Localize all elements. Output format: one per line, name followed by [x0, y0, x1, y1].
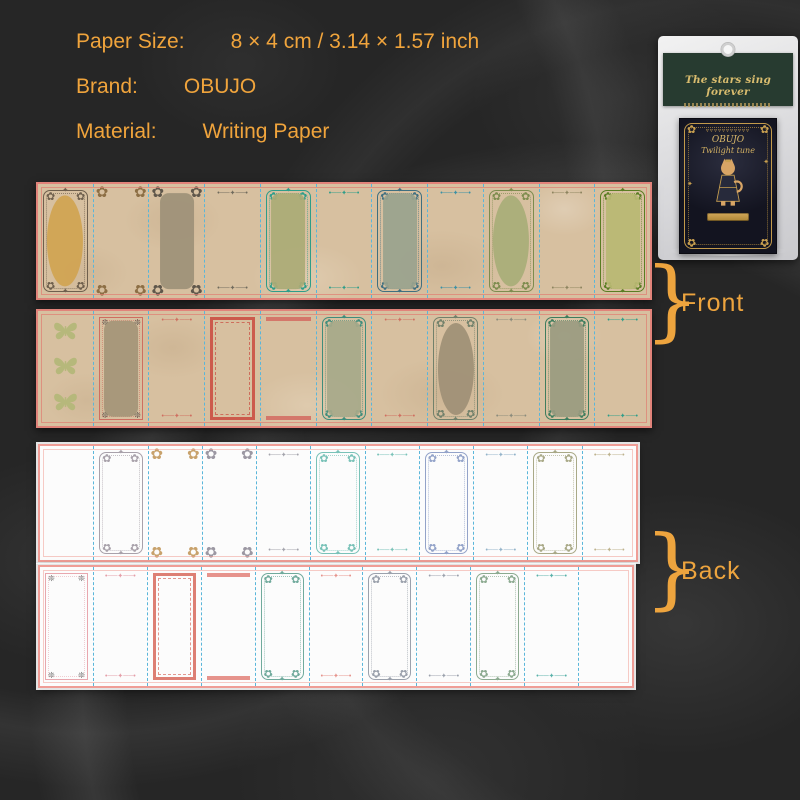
- paper-panel: •──✦──••──✦──•: [148, 311, 204, 426]
- flourish-icon: ✿: [264, 575, 273, 586]
- line-ornament-frame: •──✦──••──✦──•: [428, 184, 483, 298]
- star-icon: ✦: [495, 570, 501, 577]
- flourish-icon: ✿: [102, 454, 111, 465]
- back-label: Back: [681, 557, 741, 586]
- notepad-cover: ✿ ✿ ✿ ✿ ▿▿▿▿▿▿▿▿▿▿▿ OBUJO Twilight tune …: [679, 118, 777, 254]
- hang-hole: [722, 43, 735, 56]
- ornament-line: •──✦──•: [317, 285, 372, 292]
- flourish-icon: ✿: [96, 282, 109, 297]
- paper-panel: ✿✿✿✿✦✦: [470, 567, 524, 686]
- info-row-brand: Brand:OBUJO: [76, 75, 479, 99]
- ornament-line: •──✦──•: [366, 452, 419, 459]
- ornament-line: •──✦──•: [94, 573, 147, 580]
- flourish-icon: ✿: [241, 544, 254, 559]
- star-icon: ✦: [118, 449, 124, 456]
- star-icon: ✦: [508, 187, 514, 194]
- paper-panel: ✿✿✿✿✦✦: [527, 446, 581, 560]
- line-ornament-frame: •──✦──••──✦──•: [257, 446, 310, 560]
- notepad-series-text: Twilight tune: [701, 146, 755, 156]
- bars-frame: [207, 573, 250, 680]
- flourish-icon: ✿: [134, 185, 147, 200]
- ornate-frame: ✿✿✿✿✦✦: [261, 573, 304, 680]
- front-strip-top: ✿✿✿✿✦✦✿✿✿✿✿✿✿✿•──✦──••──✦──•✿✿✿✿✦✦•──✦──…: [36, 182, 652, 300]
- ornament-line: •──✦──•: [257, 547, 310, 554]
- ornament-line: •──✦──•: [474, 452, 527, 459]
- flourish-icon: ✿: [46, 279, 55, 290]
- star-icon: ✦: [118, 550, 124, 557]
- paper-panel: ✿✿✿✿✦✦: [38, 184, 93, 298]
- ornament-line: •──✦──•: [540, 190, 595, 197]
- ornament-line: •──✦──•: [257, 452, 310, 459]
- line-ornament-frame: •──✦──••──✦──•: [366, 446, 419, 560]
- line-ornament-frame: •──✦──••──✦──•: [583, 446, 636, 560]
- paper-panel: ✿✿✿✿✦✦: [594, 184, 650, 298]
- panel-center-shape: [160, 193, 194, 289]
- flourish-icon: ✿: [428, 541, 437, 552]
- panel-center-shape: [104, 320, 138, 417]
- flourish-icon: ✿: [564, 541, 573, 552]
- rect-border-frame: [210, 317, 255, 420]
- paper-panel: •──✦──••──✦──•: [416, 567, 470, 686]
- flourish-icon: ✿: [492, 279, 501, 290]
- ornament-line: •──✦──•: [94, 673, 147, 680]
- ornament-line: •──✦──•: [595, 413, 650, 420]
- paper-panel: ✿✿✿✿: [93, 184, 149, 298]
- paper-panel: •──✦──••──✦──•: [371, 311, 427, 426]
- snowflake-icon: ❊: [78, 670, 85, 678]
- flourish-icon: ✿: [264, 667, 273, 678]
- star-icon: ✦: [285, 288, 291, 295]
- flourish-icon: ✿: [151, 447, 164, 462]
- butterfly-icon: [52, 354, 79, 382]
- corner-frame: ✿✿✿✿: [94, 184, 149, 298]
- paper-panel: ✿✿✿✿✦✦: [362, 567, 416, 686]
- paper-panel: ✿✿✿✿✦✦: [371, 184, 427, 298]
- paper-panel: •──✦──••──✦──•: [256, 446, 310, 560]
- package-subtitle-line: [684, 103, 772, 107]
- line-ornament-frame: •──✦──••──✦──•: [540, 184, 595, 298]
- panel-center-shape: [437, 323, 473, 415]
- flourish-icon: ✿: [205, 447, 218, 462]
- ornate-frame: ✿✿✿✿✦✦: [368, 573, 411, 680]
- ornament-line: •──✦──•: [149, 317, 204, 324]
- star-icon: ✦: [495, 676, 501, 683]
- line-ornament-frame: •──✦──••──✦──•: [474, 446, 527, 560]
- star-icon: ✦: [687, 181, 693, 188]
- paper-panel: •──✦──••──✦──•: [483, 311, 539, 426]
- ornament-line: •──✦──•: [484, 317, 539, 324]
- front-label: Front: [681, 289, 744, 318]
- ornament-line: •──✦──•: [595, 317, 650, 324]
- material-value: Writing Paper: [203, 120, 330, 143]
- flourish-icon: ✿: [428, 454, 437, 465]
- paper-panel: ✿✿✿✿✦✦: [93, 446, 147, 560]
- paper-panel: ✿✿✿✿✦✦: [419, 446, 473, 560]
- ornament-line: •──✦──•: [474, 547, 527, 554]
- flourish-icon: ✿: [291, 575, 300, 586]
- paper-panel: [40, 446, 93, 560]
- star-icon: ✦: [552, 449, 558, 456]
- flourish-icon: ✿: [151, 544, 164, 559]
- front-strip-bottom: ❊❊❊❊•──✦──••──✦──•✿✿✿✿✦✦•──✦──••──✦──•✿✿…: [36, 309, 652, 428]
- flourish-icon: ✿: [134, 282, 147, 297]
- flourish-icon: ✿: [187, 544, 200, 559]
- paper-panel: [578, 567, 632, 686]
- line-ornament-frame: •──✦──••──✦──•: [484, 311, 539, 426]
- ornament-line: •──✦──•: [372, 413, 427, 420]
- panel-center-shape: [327, 320, 361, 417]
- star-icon: ✦: [341, 416, 347, 423]
- ornament-line: •──✦──•: [484, 413, 539, 420]
- paper-panel: •──✦──••──✦──•: [582, 446, 636, 560]
- info-row-material: Material:Writing Paper: [76, 120, 479, 144]
- flourish-icon: ✿: [507, 667, 516, 678]
- line-ornament-frame: •──✦──••──✦──•: [310, 567, 363, 686]
- back-strip-bottom: ❊❊❊❊•──✦──••──✦──•✿✿✿✿✦✦•──✦──••──✦──•✿✿…: [38, 565, 634, 688]
- flourish-icon: ✿: [371, 667, 380, 678]
- paper-panel: •──✦──••──✦──•: [594, 311, 650, 426]
- bunting-icon: ▿▿▿▿▿▿▿▿▿▿▿: [706, 128, 750, 134]
- paper-panel: •──✦──••──✦──•: [365, 446, 419, 560]
- flourish-icon: ✿: [436, 319, 445, 330]
- paper-panel: •──✦──••──✦──•: [204, 184, 260, 298]
- butterfly-icon: [52, 390, 79, 418]
- ornate-frame: ✿✿✿✿✦✦: [99, 452, 142, 554]
- paper-panel: ❊❊❊❊: [93, 311, 149, 426]
- ornament-line: •──✦──•: [525, 673, 578, 680]
- flourish-icon: ✿: [130, 454, 139, 465]
- star-icon: ✦: [335, 449, 341, 456]
- star-icon: ✦: [387, 676, 393, 683]
- brand-value: OBUJO: [184, 75, 256, 98]
- paper-panel: ✿✿✿✿✦✦: [539, 311, 595, 426]
- ornament-line: •──✦──•: [417, 573, 470, 580]
- line-ornament-frame: •──✦──••──✦──•: [372, 311, 427, 426]
- paper-panel: ✿✿✿✿✦✦: [255, 567, 309, 686]
- ornate-frame: ✿✿✿✿✦✦: [533, 452, 576, 554]
- flourish-icon: ✿: [319, 541, 328, 552]
- product-package: The stars sing forever ✿ ✿ ✿ ✿ ▿▿▿▿▿▿▿▿▿…: [658, 36, 798, 260]
- ornate-frame: ✿✿✿✿✦✦: [425, 452, 468, 554]
- flourish-icon: ✿: [130, 541, 139, 552]
- ornament-line: •──✦──•: [205, 285, 260, 292]
- panel-center-shape: [383, 193, 417, 289]
- flourish-icon: ✿: [399, 667, 408, 678]
- thin-rect-frame: ❊❊❊❊: [45, 573, 88, 680]
- corner-frame: ✿✿✿✿: [203, 446, 256, 560]
- panel-center-shape: [47, 195, 83, 286]
- flourish-icon: ✿: [347, 454, 356, 465]
- flourish-icon: ✿: [492, 192, 501, 203]
- paper-panel: •──✦──••──✦──•: [473, 446, 527, 560]
- brand-label: Brand:: [76, 75, 138, 98]
- flourish-icon: ✿: [241, 447, 254, 462]
- star-icon: ✦: [453, 314, 459, 321]
- star-icon: ✦: [444, 550, 450, 557]
- butterfly-column: [42, 315, 89, 422]
- ornament-line: •──✦──•: [428, 190, 483, 197]
- notepad-artwork: ▿▿▿▿▿▿▿▿▿▿▿ OBUJO Twilight tune: [680, 119, 776, 253]
- paper-panel: ✿✿✿✿: [148, 446, 202, 560]
- paper-panel: ✿✿✿✿: [202, 446, 256, 560]
- ornament-line: •──✦──•: [583, 547, 636, 554]
- flourish-icon: ✿: [521, 279, 530, 290]
- star-icon: ✦: [508, 288, 514, 295]
- line-ornament-frame: •──✦──••──✦──•: [317, 184, 372, 298]
- star-icon: ✦: [62, 288, 68, 295]
- panel-center-shape: [606, 193, 640, 289]
- ornament-line: •──✦──•: [310, 573, 363, 580]
- flourish-icon: ✿: [564, 454, 573, 465]
- star-icon: ✦: [387, 570, 393, 577]
- star-icon: ✦: [279, 676, 285, 683]
- package-title: The stars sing forever: [663, 74, 793, 98]
- flourish-icon: ✿: [479, 667, 488, 678]
- flourish-icon: ✿: [205, 544, 218, 559]
- ornament-line: •──✦──•: [317, 190, 372, 197]
- flourish-icon: ✿: [102, 541, 111, 552]
- paper-panel: ✿✿✿✿✦✦: [427, 311, 483, 426]
- paper-size-value: 8 × 4 cm / 3.14 × 1.57 inch: [231, 30, 480, 53]
- butterfly-icon: [52, 319, 79, 347]
- flourish-icon: ✿: [536, 454, 545, 465]
- flourish-icon: ✿: [521, 192, 530, 203]
- ornament-line: •──✦──•: [417, 673, 470, 680]
- paper-panel: [260, 311, 316, 426]
- line-ornament-frame: •──✦──••──✦──•: [205, 184, 260, 298]
- star-icon: ✦: [397, 288, 403, 295]
- ornament-line: •──✦──•: [366, 547, 419, 554]
- star-icon: ✦: [552, 550, 558, 557]
- paper-panel: [201, 567, 255, 686]
- flourish-icon: ✿: [436, 407, 445, 418]
- paper-panel: •──✦──••──✦──•: [309, 567, 363, 686]
- star-icon: ✦: [453, 416, 459, 423]
- paper-panel: ✿✿✿✿✦✦: [483, 184, 539, 298]
- paper-panel: ✿✿✿✿✦✦: [310, 446, 364, 560]
- panel-center-shape: [550, 320, 584, 417]
- info-row-paper-size: Paper Size:8 × 4 cm / 3.14 × 1.57 inch: [76, 30, 479, 54]
- paper-panel: ✿✿✿✿✦✦: [260, 184, 316, 298]
- ornament-line: •──✦──•: [149, 413, 204, 420]
- star-icon: ✦: [763, 159, 769, 166]
- star-icon: ✦: [279, 570, 285, 577]
- snowflake-icon: ❊: [48, 575, 55, 583]
- ornament-line: •──✦──•: [525, 573, 578, 580]
- flourish-icon: ✿: [466, 319, 475, 330]
- notepad-banner: [707, 213, 749, 221]
- material-label: Material:: [76, 120, 157, 143]
- line-ornament-frame: •──✦──••──✦──•: [149, 311, 204, 426]
- star-icon: ✦: [62, 187, 68, 194]
- flourish-icon: ✿: [536, 541, 545, 552]
- rect-border-frame: [153, 573, 196, 680]
- package-header-card: The stars sing forever: [663, 53, 793, 106]
- flourish-icon: ✿: [399, 575, 408, 586]
- star-icon: ✦: [444, 449, 450, 456]
- flourish-icon: ✿: [291, 667, 300, 678]
- flourish-icon: ✿: [76, 192, 85, 203]
- ornament-line: •──✦──•: [583, 452, 636, 459]
- paper-panel: ✿✿✿✿: [148, 184, 204, 298]
- paper-panel: •──✦──••──✦──•: [524, 567, 578, 686]
- star-icon: ✦: [564, 416, 570, 423]
- flourish-icon: ✿: [319, 454, 328, 465]
- paper-panel: ❊❊❊❊: [40, 567, 93, 686]
- ornament-line: •──✦──•: [372, 317, 427, 324]
- line-ornament-frame: •──✦──••──✦──•: [94, 567, 147, 686]
- flourish-icon: ✿: [479, 575, 488, 586]
- ornament-line: •──✦──•: [540, 285, 595, 292]
- ornament-line: •──✦──•: [205, 190, 260, 197]
- line-ornament-frame: •──✦──••──✦──•: [595, 311, 650, 426]
- ornament-line: •──✦──•: [428, 285, 483, 292]
- paper-panel: •──✦──••──✦──•: [427, 184, 483, 298]
- corner-frame: ✿✿✿✿: [149, 446, 202, 560]
- flourish-icon: ✿: [96, 185, 109, 200]
- flourish-icon: ✿: [456, 541, 465, 552]
- star-icon: ✦: [620, 288, 626, 295]
- notepad-brand-text: OBUJO: [712, 136, 744, 146]
- star-icon: ✦: [335, 550, 341, 557]
- flourish-icon: ✿: [187, 447, 200, 462]
- cat-illustration: [710, 156, 746, 210]
- back-strip-top: ✿✿✿✿✦✦✿✿✿✿✿✿✿✿•──✦──••──✦──•✿✿✿✿✦✦•──✦──…: [38, 444, 638, 562]
- line-ornament-frame: •──✦──••──✦──•: [525, 567, 578, 686]
- paper-panel: ✿✿✿✿✦✦: [316, 311, 372, 426]
- flourish-icon: ✿: [76, 279, 85, 290]
- line-ornament-frame: •──✦──••──✦──•: [417, 567, 470, 686]
- paper-panel: [38, 311, 93, 426]
- paper-panel: [147, 567, 201, 686]
- paper-panel: •──✦──••──✦──•: [539, 184, 595, 298]
- ornament-line: •──✦──•: [310, 673, 363, 680]
- panel-center-shape: [493, 195, 529, 286]
- panel-center-shape: [271, 193, 305, 289]
- paper-size-label: Paper Size:: [76, 30, 185, 53]
- snowflake-icon: ❊: [78, 575, 85, 583]
- snowflake-icon: ❊: [48, 670, 55, 678]
- flourish-icon: ✿: [456, 454, 465, 465]
- flourish-icon: ✿: [507, 575, 516, 586]
- flourish-icon: ✿: [46, 192, 55, 203]
- paper-panel: •──✦──••──✦──•: [316, 184, 372, 298]
- ornate-frame: ✿✿✿✿✦✦: [476, 573, 519, 680]
- paper-panel: •──✦──••──✦──•: [93, 567, 147, 686]
- bars-frame: [266, 317, 311, 420]
- product-info: Paper Size:8 × 4 cm / 3.14 × 1.57 inch B…: [76, 30, 479, 165]
- flourish-icon: ✿: [466, 407, 475, 418]
- flourish-icon: ✿: [371, 575, 380, 586]
- ornate-frame: ✿✿✿✿✦✦: [316, 452, 359, 554]
- paper-panel: [204, 311, 260, 426]
- flourish-icon: ✿: [347, 541, 356, 552]
